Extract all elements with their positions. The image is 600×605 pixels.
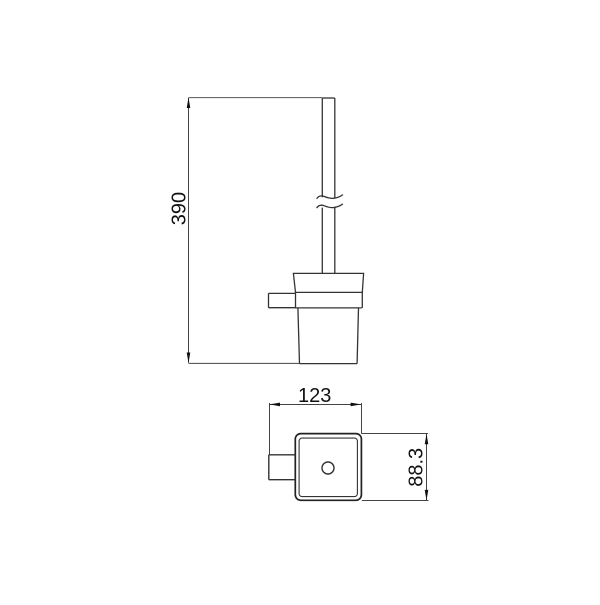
svg-text:123: 123 — [298, 385, 331, 407]
svg-text:88.3: 88.3 — [405, 448, 427, 487]
svg-text:390: 390 — [169, 192, 191, 225]
